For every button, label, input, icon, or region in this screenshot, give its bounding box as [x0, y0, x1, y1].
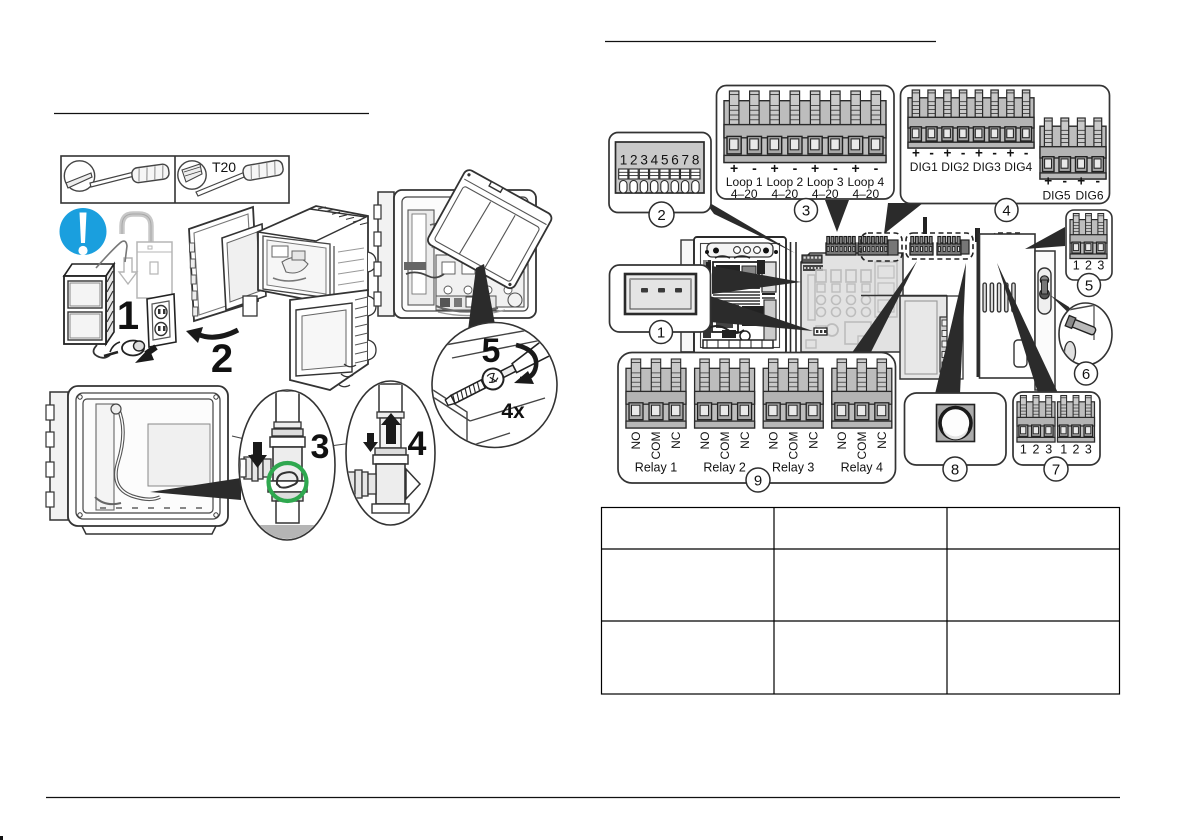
svg-text:3: 3	[1085, 443, 1092, 457]
svg-text:3: 3	[1097, 259, 1104, 273]
svg-text:+: +	[975, 146, 983, 161]
svg-text:DIG2: DIG2	[941, 160, 969, 174]
svg-text:-: -	[929, 146, 934, 161]
svg-text:+: +	[1077, 174, 1085, 189]
svg-text:3: 3	[640, 153, 648, 168]
svg-text:4: 4	[408, 425, 427, 463]
svg-text:2: 2	[1033, 443, 1040, 457]
svg-text:-: -	[1063, 174, 1068, 189]
svg-text:NC: NC	[738, 431, 752, 449]
svg-text:3: 3	[311, 428, 330, 466]
svg-text:-: -	[874, 160, 879, 176]
svg-text:+: +	[730, 160, 738, 176]
svg-text:1: 1	[1073, 259, 1080, 273]
svg-text:NO: NO	[766, 432, 780, 450]
svg-text:4–20: 4–20	[852, 187, 879, 201]
svg-text:2: 2	[657, 207, 665, 224]
svg-text:8: 8	[692, 153, 700, 168]
svg-text:2: 2	[630, 153, 638, 168]
svg-text:5: 5	[1085, 277, 1093, 294]
svg-text:4: 4	[1002, 202, 1010, 219]
svg-text:-: -	[1096, 174, 1101, 189]
svg-text:7: 7	[682, 153, 690, 168]
svg-text:Relay 1: Relay 1	[635, 461, 677, 475]
svg-text:1: 1	[1020, 443, 1027, 457]
svg-text:+: +	[943, 146, 951, 161]
svg-text:COM: COM	[855, 432, 869, 460]
svg-text:-: -	[1024, 146, 1029, 161]
svg-text:T20: T20	[212, 159, 236, 175]
svg-text:NC: NC	[669, 431, 683, 449]
svg-text:9: 9	[754, 472, 762, 489]
svg-text:NC: NC	[806, 431, 820, 449]
svg-text:COM: COM	[718, 432, 732, 460]
svg-text:1: 1	[657, 324, 665, 341]
svg-text:2: 2	[1085, 259, 1092, 273]
svg-text:3: 3	[1045, 443, 1052, 457]
svg-text:Relay 4: Relay 4	[841, 461, 883, 475]
svg-text:NO: NO	[629, 432, 643, 450]
svg-text:Relay 3: Relay 3	[772, 461, 814, 475]
svg-text:DIG6: DIG6	[1075, 188, 1103, 202]
svg-text:4x: 4x	[501, 400, 525, 423]
svg-text:-: -	[833, 160, 838, 176]
svg-text:+: +	[1006, 146, 1014, 161]
svg-text:NO: NO	[835, 432, 849, 450]
svg-text:4: 4	[651, 153, 659, 168]
svg-text:+: +	[811, 160, 819, 176]
svg-text:COM: COM	[786, 432, 800, 460]
svg-text:4–20: 4–20	[812, 187, 839, 201]
svg-text:5: 5	[661, 153, 669, 168]
svg-text:NO: NO	[698, 432, 712, 450]
svg-text:6: 6	[1082, 366, 1090, 383]
svg-text:3: 3	[802, 202, 810, 219]
svg-text:1: 1	[1060, 443, 1067, 457]
svg-text:-: -	[752, 160, 757, 176]
svg-text:2: 2	[211, 337, 233, 381]
svg-text:DIG4: DIG4	[1004, 160, 1032, 174]
svg-text:-: -	[961, 146, 966, 161]
svg-text:DIG3: DIG3	[973, 160, 1001, 174]
svg-text:+: +	[771, 160, 779, 176]
svg-text:4–20: 4–20	[771, 187, 798, 201]
svg-text:8: 8	[951, 461, 959, 478]
svg-text:1: 1	[117, 294, 139, 338]
svg-text:+: +	[1044, 174, 1052, 189]
svg-text:7: 7	[1052, 461, 1060, 478]
svg-text:1: 1	[620, 153, 628, 168]
svg-text:Relay 2: Relay 2	[703, 461, 745, 475]
svg-text:-: -	[793, 160, 798, 176]
svg-text:+: +	[912, 146, 920, 161]
svg-text:4–20: 4–20	[731, 187, 758, 201]
svg-text:DIG1: DIG1	[910, 160, 938, 174]
svg-text:5: 5	[482, 332, 501, 370]
svg-text:-: -	[992, 146, 997, 161]
svg-text:COM: COM	[649, 432, 663, 460]
svg-text:+: +	[852, 160, 860, 176]
svg-text:NC: NC	[875, 431, 889, 449]
svg-text:6: 6	[671, 153, 679, 168]
svg-text:DIG5: DIG5	[1042, 188, 1070, 202]
svg-text:2: 2	[1073, 443, 1080, 457]
